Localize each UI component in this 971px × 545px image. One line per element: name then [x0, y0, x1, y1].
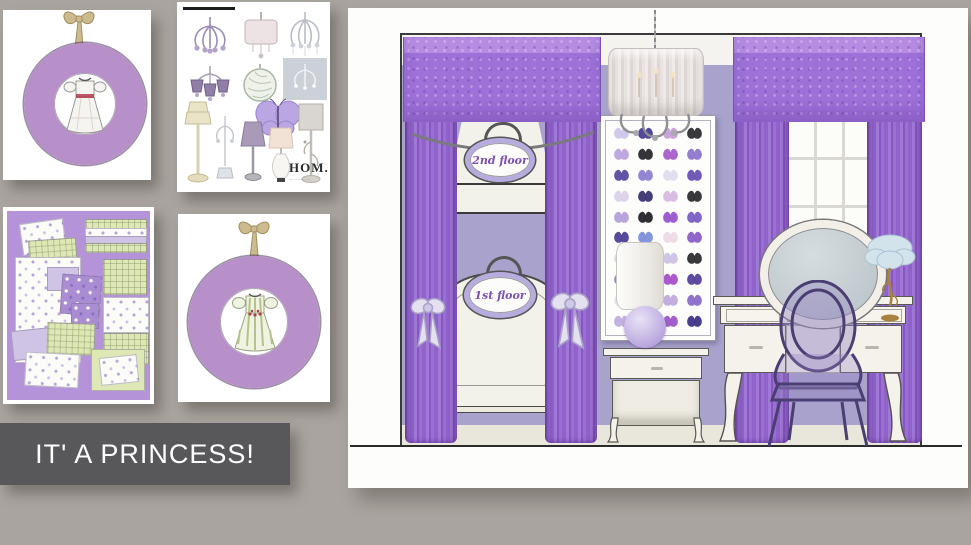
butterfly-icon: [687, 274, 702, 286]
hom-logo-tagline: ―――――: [289, 176, 329, 181]
nightstand-top: [603, 348, 709, 356]
butterfly-icon: [687, 232, 702, 244]
framed-chandelier-print: [283, 58, 327, 100]
butterfly-icon: [663, 191, 678, 203]
title-banner: IT' A PRINCESS!: [0, 423, 290, 485]
canopy-rail-line: [442, 212, 560, 214]
butterfly-icon: [614, 191, 629, 203]
butterfly-icon: [614, 212, 629, 224]
butterfly-icon: [663, 149, 678, 161]
butterfly-icon: [638, 170, 653, 182]
butterfly-icon: [638, 149, 653, 161]
hom-logo-text: HOM.: [289, 160, 329, 175]
hom-logo: HOM. ―――――: [289, 160, 329, 181]
butterfly-icon: [687, 191, 702, 203]
butterfly-icon: [687, 295, 702, 307]
plaque-1st-floor: 1st floor: [464, 272, 536, 318]
card-bedding-board: [3, 207, 154, 404]
purple-crystal-chandelier-icon: [185, 14, 235, 64]
butterfly-icon: [663, 274, 678, 286]
crystal-chandelier-icon: [283, 10, 327, 64]
banner-text: IT' A PRINCESS!: [35, 439, 255, 470]
green-sheet-set: [91, 349, 145, 391]
butterfly-icon: [687, 316, 702, 328]
card-product-catalog: HOM. ―――――: [177, 2, 330, 192]
card-dress-wreath-2: [178, 214, 330, 402]
butterfly-icon: [614, 149, 629, 161]
butterfly-icon: [687, 149, 702, 161]
chandelier-arms: [616, 112, 694, 146]
crystal-candelabra-lamp-icon: [211, 114, 239, 182]
drum-pendant-icon: [241, 12, 281, 64]
butterfly-icon: [663, 253, 678, 265]
bed-valance: [403, 37, 601, 122]
cream-tiered-lamp-icon: [182, 100, 214, 184]
plaque-2nd-floor-text: 2nd floor: [472, 154, 528, 167]
white-dress-icon: [57, 74, 113, 136]
drawer-handle: [651, 367, 663, 370]
butterfly-icon: [687, 253, 702, 265]
green-plaid-pillow: [46, 322, 95, 356]
butterfly-icon: [687, 212, 702, 224]
purple-shade-lamp-icon: [239, 120, 267, 182]
window-valance: [733, 37, 925, 122]
butterfly-icon: [687, 170, 702, 182]
butterfly-icon: [638, 212, 653, 224]
butterfly-icon: [663, 170, 678, 182]
canopy-rail-line: [446, 183, 556, 185]
folded-plaid-stack: [103, 259, 147, 295]
sheet-stack-strip: [85, 243, 147, 253]
white-floral-pillow: [24, 352, 80, 389]
nightstand-legs: [606, 418, 706, 444]
lamp-ball-base: [624, 306, 666, 348]
butterfly-icon: [614, 170, 629, 182]
cylinder-lamp-shade: [616, 242, 664, 310]
ribbon-bow-icon: [234, 214, 274, 260]
butterfly-icon: [663, 295, 678, 307]
folded-white-sheets: [99, 354, 140, 386]
butterfly-icon: [638, 191, 653, 203]
chandelier-drum-shade: [608, 48, 704, 116]
green-dress-icon: [226, 290, 284, 354]
ghost-chair: [756, 280, 878, 450]
catalog-header-text: [183, 7, 235, 10]
folded-floral-stack: [103, 297, 149, 333]
nightstand: [606, 348, 706, 444]
bedding-board-background: [7, 211, 150, 400]
butterfly-icon: [663, 212, 678, 224]
plaque-1st-floor-text: 1st floor: [474, 289, 525, 302]
curtain-bow-icon: [550, 286, 590, 366]
plaque-2nd-floor: 2nd floor: [465, 138, 535, 182]
moodboard-canvas: HOM. ―――――: [0, 0, 971, 545]
card-dress-wreath-1: [3, 10, 151, 180]
butterfly-icon: [663, 232, 678, 244]
room-rendering-board: 2nd floor 1st floor: [348, 8, 968, 488]
chandelier-chain: [654, 10, 656, 50]
nightstand-drawer: [610, 357, 702, 379]
curtain-bow-icon: [410, 292, 446, 364]
